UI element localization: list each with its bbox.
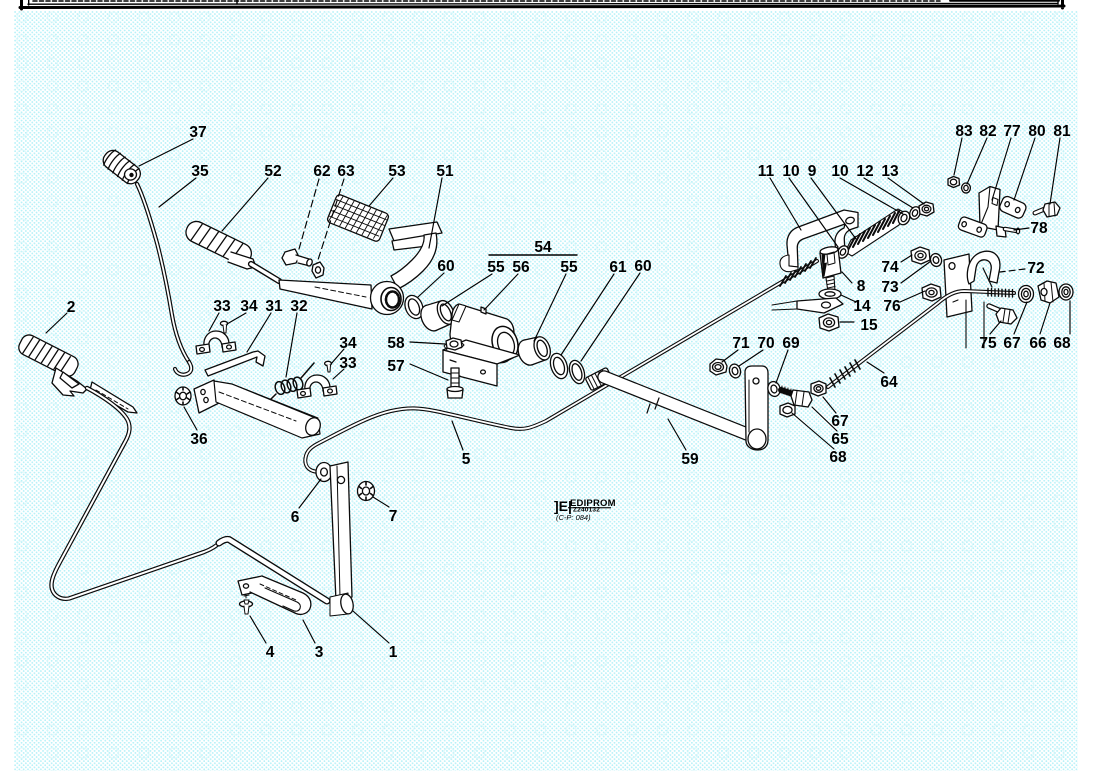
- svg-text:32: 32: [290, 298, 307, 315]
- svg-text:52: 52: [264, 163, 281, 180]
- svg-text:10: 10: [782, 163, 799, 180]
- svg-text:31: 31: [265, 298, 283, 315]
- svg-text:63: 63: [337, 163, 355, 180]
- svg-text:66: 66: [1029, 335, 1047, 352]
- svg-text:10: 10: [831, 163, 848, 180]
- svg-text:72: 72: [1027, 260, 1044, 277]
- svg-text:37: 37: [189, 124, 206, 141]
- svg-text:15: 15: [860, 317, 878, 334]
- svg-text:73: 73: [881, 279, 899, 296]
- svg-text:55: 55: [560, 259, 578, 276]
- svg-text:4: 4: [266, 644, 275, 661]
- svg-text:53: 53: [388, 163, 406, 180]
- svg-text:74: 74: [881, 259, 899, 276]
- svg-text:82: 82: [979, 123, 996, 140]
- svg-text:64: 64: [880, 374, 898, 391]
- svg-text:54: 54: [534, 239, 552, 256]
- svg-text:55: 55: [487, 259, 505, 276]
- svg-text:80: 80: [1028, 123, 1045, 140]
- svg-text:35: 35: [191, 163, 209, 180]
- svg-text:62: 62: [313, 163, 330, 180]
- svg-text:60: 60: [634, 258, 651, 275]
- svg-text:5: 5: [462, 451, 471, 468]
- svg-text:70: 70: [757, 335, 774, 352]
- svg-text:56: 56: [512, 259, 530, 276]
- svg-text:(C-P: 084): (C-P: 084): [556, 513, 591, 522]
- svg-text:65: 65: [831, 431, 849, 448]
- svg-text:69: 69: [782, 335, 800, 352]
- svg-text:78: 78: [1030, 220, 1048, 237]
- svg-text:57: 57: [387, 358, 404, 375]
- svg-text:13: 13: [881, 163, 899, 180]
- svg-text:51: 51: [436, 163, 454, 180]
- svg-text:81: 81: [1053, 123, 1071, 140]
- svg-text:68: 68: [1053, 335, 1071, 352]
- svg-text:58: 58: [387, 335, 405, 352]
- svg-text:67: 67: [1003, 335, 1020, 352]
- svg-text:33: 33: [339, 355, 357, 372]
- svg-text:34: 34: [240, 298, 258, 315]
- svg-text:75: 75: [979, 335, 997, 352]
- svg-text:8: 8: [857, 278, 866, 295]
- svg-text:33: 33: [213, 298, 231, 315]
- svg-text:3: 3: [315, 644, 324, 661]
- svg-text:68: 68: [829, 449, 847, 466]
- svg-text:60: 60: [437, 258, 454, 275]
- svg-text:36: 36: [190, 431, 208, 448]
- svg-text:77: 77: [1003, 123, 1020, 140]
- svg-text:34: 34: [339, 335, 357, 352]
- svg-text:67: 67: [831, 413, 848, 430]
- svg-text:71: 71: [732, 335, 750, 352]
- svg-text:76: 76: [883, 298, 901, 315]
- svg-text:14: 14: [853, 298, 871, 315]
- svg-text:11: 11: [758, 163, 775, 180]
- svg-text:2: 2: [67, 299, 76, 316]
- svg-text:61: 61: [609, 259, 627, 276]
- svg-text:6: 6: [291, 509, 300, 526]
- svg-text:9: 9: [808, 163, 817, 180]
- svg-text:7: 7: [389, 508, 398, 525]
- svg-text:83: 83: [955, 123, 973, 140]
- svg-text:1: 1: [389, 644, 398, 661]
- svg-text:12: 12: [856, 163, 873, 180]
- svg-text:59: 59: [681, 451, 699, 468]
